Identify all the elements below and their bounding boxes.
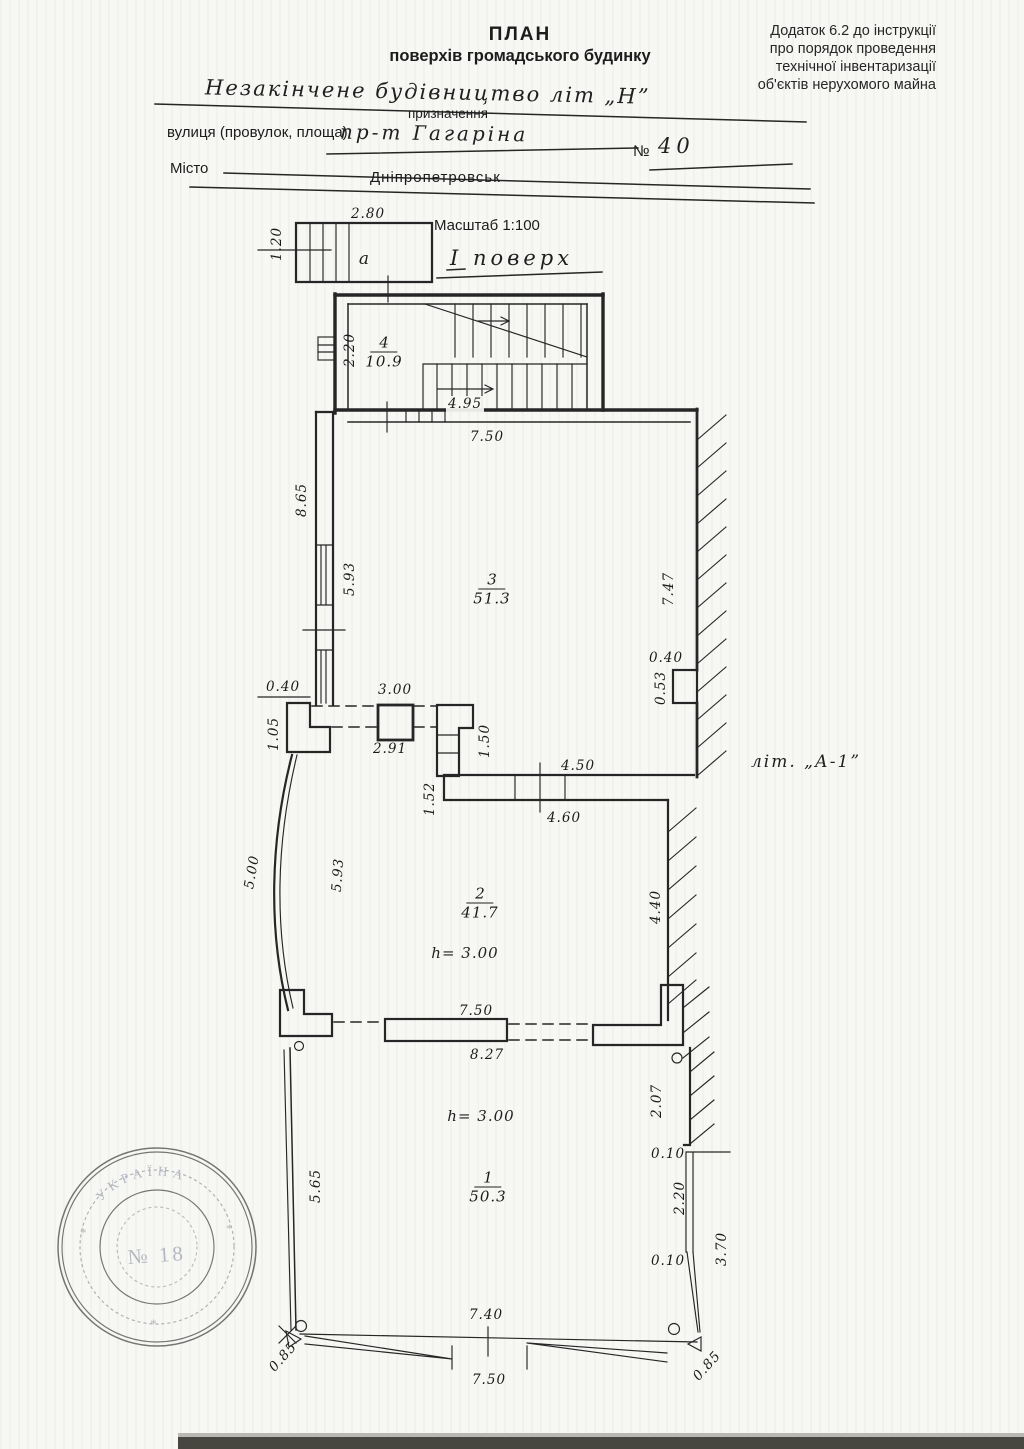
dim-window-east: 2.20 — [672, 1181, 688, 1215]
dim-pier-right-height: 1.50 — [477, 724, 493, 758]
dim-stair-width: 2.20 — [342, 333, 358, 367]
dim-room2-east: 4.40 — [648, 890, 664, 924]
scale-label: Масштаб 1:100 — [434, 217, 540, 234]
stamp-star-right: * — [226, 1221, 233, 1236]
room1-east-hatch — [690, 1052, 714, 1144]
room1-area: 50.3 — [469, 1188, 506, 1205]
dim-east-upper: 7.47 — [661, 572, 677, 606]
dim-stair-run: 4.95 — [446, 396, 484, 412]
room2-label: 2 41.7 — [461, 886, 498, 921]
room3-number: 3 — [478, 572, 506, 590]
purpose-caption: призначення — [408, 106, 488, 121]
dim-west-mid: 5.93 — [342, 562, 358, 596]
dim-arc-inner: 5.93 — [329, 857, 347, 892]
dim-bottom-bottom: 7.50 — [472, 1372, 506, 1388]
room4-number: 4 — [370, 335, 398, 353]
dim-pier-height: 1.05 — [266, 717, 282, 751]
east-wall-hatch — [697, 415, 726, 776]
dim-wall-bottom: 4.60 — [547, 810, 581, 826]
city-value: Дніпропетровськ — [370, 169, 501, 186]
dim-pier-width: 0.40 — [266, 679, 300, 695]
curved-wall — [274, 755, 297, 1010]
dim-a-width: 2.80 — [351, 206, 385, 222]
dim-column-span-top: 3.00 — [378, 682, 412, 698]
dim-column-span-bottom: 2.91 — [373, 741, 407, 757]
bottom-wall — [279, 1321, 701, 1370]
scanned-document-page: УКРАЇНА * * * № 18 Додаток 6.2 до інстру… — [0, 0, 1024, 1449]
room2-area: 41.7 — [461, 904, 498, 921]
page-subtitle: поверхів громадського будинку — [300, 47, 740, 66]
room3-label: 3 51.3 — [473, 572, 510, 607]
seal-stamp: УКРАЇНА * * * № 18 — [58, 1148, 256, 1346]
stamp-number: № 18 — [127, 1241, 187, 1269]
room1-number: 1 — [474, 1170, 502, 1188]
dim-room1-east-a: 2.07 — [649, 1084, 665, 1118]
room4-area: 10.9 — [365, 353, 402, 370]
east-wall — [593, 409, 730, 1335]
pier-right-hatch — [683, 987, 709, 1058]
room1-height-label: h= 3.00 — [447, 1107, 514, 1125]
room-a-label: a — [359, 249, 369, 269]
street-value-handwritten: пр-т Гагаріна — [340, 120, 529, 147]
floor-label-handwritten: І поверх — [450, 246, 573, 270]
house-number-sign: № — [633, 143, 650, 161]
dim-step-b: 0.10 — [651, 1253, 685, 1269]
room1-label: 1 50.3 — [469, 1170, 506, 1205]
dim-pilaster-height: 0.53 — [653, 671, 669, 705]
stamp-country-text: УКРАЇНА — [93, 1163, 190, 1203]
annex-line: об'єктів нерухомого майна — [640, 76, 936, 94]
dim-east-lower: 3.70 — [714, 1232, 730, 1266]
stamp-star-left: * — [80, 1225, 87, 1240]
dim-below-stairs: 7.50 — [470, 429, 504, 445]
street-label: вулиця (провулок, площа) — [167, 124, 348, 141]
page-title: ПЛАН — [330, 24, 710, 46]
house-number-handwritten: 40 — [658, 134, 695, 158]
city-label: Місто — [170, 160, 208, 177]
scan-edge-bar — [178, 1437, 1024, 1449]
dim-room1-west: 5.65 — [308, 1169, 324, 1203]
room1-west-wall — [284, 1048, 296, 1330]
dim-pilaster-width: 0.40 — [649, 650, 683, 666]
dim-bottom-top: 7.40 — [469, 1307, 503, 1323]
building-letter-label: літ. „А-1” — [751, 752, 861, 772]
room2-east-hatch — [668, 808, 696, 1004]
dim-wall-top: 4.50 — [561, 758, 595, 774]
dim-a-height: 1.20 — [269, 227, 285, 261]
west-wall — [303, 412, 345, 705]
dim-divider-top: 7.50 — [459, 1003, 493, 1019]
stamp-star-bottom: * — [150, 1316, 157, 1331]
divider-wall — [334, 1019, 591, 1041]
dim-wall-left-height: 1.52 — [422, 782, 438, 816]
room2-number: 2 — [466, 886, 494, 904]
room3-area: 51.3 — [473, 590, 510, 607]
stairs — [423, 304, 587, 409]
dim-divider-bottom: 8.27 — [470, 1047, 504, 1063]
dim-west-upper: 8.65 — [294, 483, 310, 517]
pier-bottom-left — [280, 990, 332, 1051]
room4-label: 4 10.9 — [365, 335, 402, 370]
dim-step-a: 0.10 — [651, 1146, 685, 1162]
room2-height-label: h= 3.00 — [431, 944, 498, 962]
